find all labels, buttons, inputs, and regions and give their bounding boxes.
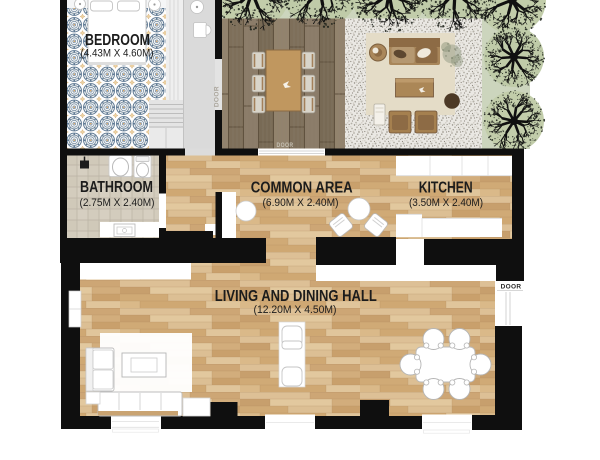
svg-text:KITCHEN: KITCHEN: [419, 180, 473, 197]
svg-text:COMMON AREA: COMMON AREA: [251, 180, 353, 197]
svg-text:BATHROOM: BATHROOM: [80, 179, 153, 196]
svg-text:LIVING AND DINING HALL: LIVING AND DINING HALL: [215, 288, 377, 305]
svg-text:DOOR: DOOR: [277, 142, 294, 149]
svg-text:(3.50M X 2.40M): (3.50M X 2.40M): [409, 197, 483, 209]
svg-text:(6.90M X 2.40M): (6.90M X 2.40M): [263, 197, 339, 209]
svg-text:DOOR: DOOR: [214, 86, 221, 107]
svg-text:(2.75M X 2.40M): (2.75M X 2.40M): [80, 197, 155, 209]
svg-text:DOOR: DOOR: [501, 284, 522, 291]
svg-text:(12.20M X 4.50M): (12.20M X 4.50M): [254, 304, 337, 316]
svg-text:BEDROOM: BEDROOM: [85, 32, 150, 49]
svg-text:(4.43M X 4.60M): (4.43M X 4.60M): [81, 48, 154, 60]
